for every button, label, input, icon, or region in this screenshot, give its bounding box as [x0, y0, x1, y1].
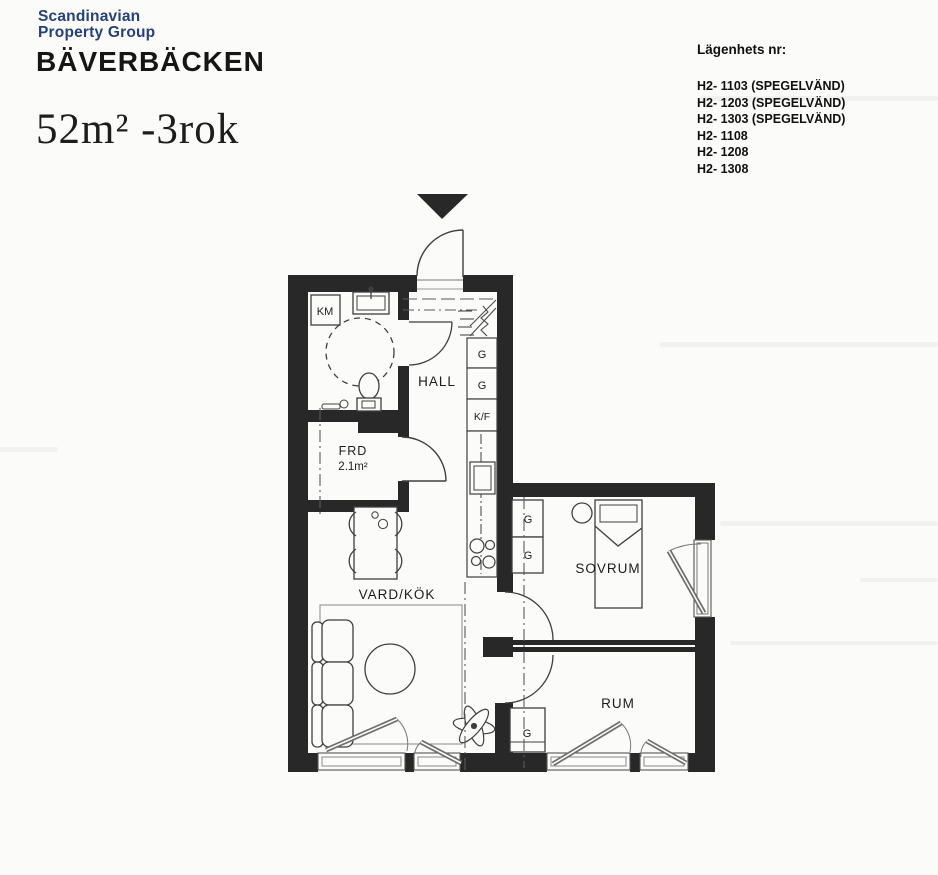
frd-door-arc: [402, 437, 446, 481]
wall-segment: [483, 637, 513, 657]
cooktop-burner: [472, 557, 481, 566]
wall-segment: [288, 753, 318, 772]
bed-pillow: [600, 505, 637, 522]
coat-rack-zigzag: [481, 306, 488, 336]
rum-windows: [547, 723, 688, 770]
dining-area: [349, 507, 402, 579]
toilet-tank-lid: [362, 401, 375, 408]
cooktop-burner: [486, 541, 495, 550]
partition-wall: [513, 647, 695, 652]
label-g: G: [524, 550, 533, 562]
living-room: [312, 605, 496, 748]
window-arc: [621, 723, 631, 752]
room-area-frd: 2.1m²: [338, 461, 368, 473]
wall-segment: [398, 291, 409, 320]
floor-plan: HALL FRD 2.1m² VARD/KÖK SOVRUM RUM KM G …: [0, 0, 938, 875]
plant-center: [472, 724, 477, 729]
turning-circle: [326, 318, 394, 386]
wall-segment: [688, 753, 715, 772]
wall-segment: [398, 366, 409, 437]
room-label-vardkok: VARD/KÖK: [359, 587, 436, 602]
scanned-floorplan-page: Scandinavian Property Group BÄVERBÄCKEN …: [0, 0, 938, 875]
cooktop-burner: [470, 539, 484, 553]
room-label-hall: HALL: [418, 374, 456, 389]
window-frame: [318, 753, 405, 770]
wall-segment: [497, 275, 513, 592]
label-km: KM: [317, 306, 334, 318]
toilet-icon: [359, 373, 379, 399]
table-decor: [378, 519, 387, 528]
plant-icon: [452, 704, 496, 748]
wall-segment: [288, 275, 417, 292]
cooktop-burner: [483, 556, 495, 568]
room-label-rum: RUM: [601, 696, 635, 711]
sofa-seat-cushion: [322, 662, 353, 705]
oven-door: [474, 466, 491, 490]
sovrum-door-arc: [505, 592, 553, 640]
floor-drain-icon: [340, 400, 348, 408]
entry-door-arc: [417, 230, 463, 276]
wall-segment: [358, 420, 400, 433]
partition-wall: [513, 640, 695, 645]
coffee-table: [365, 644, 415, 694]
rum-door-arc: [505, 655, 553, 703]
wall-segment: [630, 753, 640, 772]
room-label-frd: FRD: [339, 444, 368, 458]
label-g: G: [478, 380, 487, 392]
wall-segment: [513, 483, 715, 497]
wall-segment: [695, 617, 715, 772]
frd-door: [402, 437, 446, 481]
coat-rack-icon: [458, 300, 496, 336]
wall-segment: [288, 275, 308, 772]
floor-drain-icon: [322, 404, 340, 409]
wall-segment: [695, 483, 715, 540]
section-lines-hall: [403, 299, 496, 310]
label-g: G: [524, 514, 533, 526]
sofa: [312, 620, 353, 747]
wall-segment: [460, 753, 547, 772]
table-decor: [372, 512, 378, 518]
label-kf: K/F: [474, 411, 490, 423]
entry-door: [417, 230, 463, 289]
entry-arrow-icon: [417, 194, 468, 219]
bedside-table: [572, 503, 592, 523]
label-g: G: [523, 728, 532, 740]
wall-segment: [405, 753, 414, 772]
bedroom-window: [669, 540, 711, 617]
kitchen-counter: [467, 431, 497, 577]
kitchen: [467, 338, 497, 577]
window-arc: [397, 719, 408, 751]
room-label-sovrum: SOVRUM: [575, 561, 640, 576]
label-g: G: [478, 349, 487, 361]
sink-tap-icon: [369, 287, 373, 291]
sofa-seat-cushion: [322, 620, 353, 662]
bathroom-door-arc: [409, 322, 452, 365]
